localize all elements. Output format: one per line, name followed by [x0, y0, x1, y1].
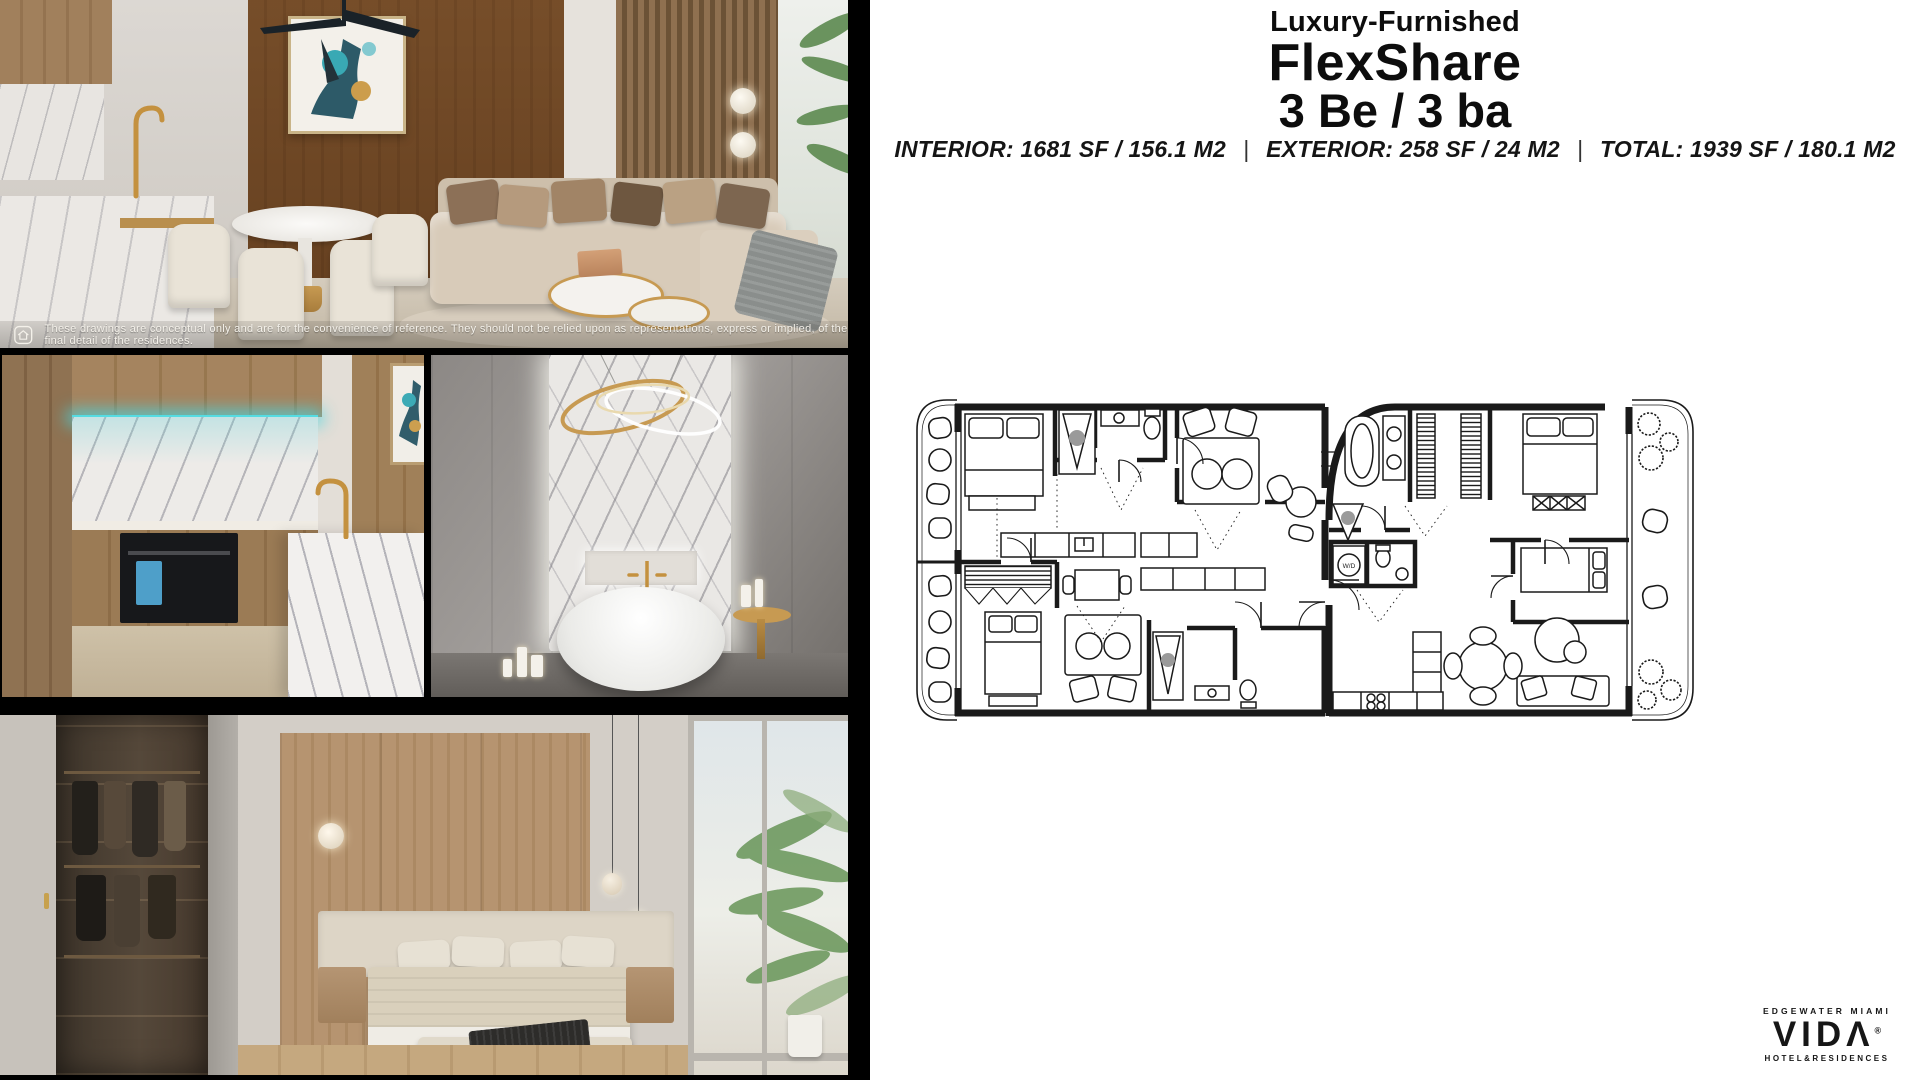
nightstand	[626, 967, 674, 1023]
upper-cabinets	[0, 0, 112, 84]
candle	[755, 579, 763, 607]
hanging-garment	[114, 875, 140, 947]
brochure-page: These drawings are conceptual only and a…	[0, 0, 1920, 1080]
powder-room	[1376, 545, 1408, 580]
dining-chair	[168, 224, 230, 308]
title-block: Luxury-Furnished FlexShare 3 Be / 3 ba	[870, 6, 1920, 138]
photo-bedroom-closet	[0, 715, 848, 1075]
dining-round-table	[1444, 627, 1522, 705]
brand-text: VIDΛ	[1773, 1015, 1875, 1054]
bed-bath-count: 3 Be / 3 ba	[870, 83, 1920, 138]
wall-sconce	[318, 823, 344, 849]
registered-mark: ®	[1875, 1025, 1882, 1035]
entry-table-chair	[1264, 472, 1316, 542]
hanging-garment	[132, 781, 158, 857]
separator: |	[1243, 136, 1249, 162]
balcony-glass-doors	[688, 715, 848, 1075]
marble-backsplash	[0, 84, 104, 180]
door-handle	[44, 893, 49, 909]
marble-waterfall-island	[288, 533, 424, 697]
gold-faucet	[302, 473, 362, 539]
wd-label: W/D	[1343, 563, 1356, 570]
candle	[531, 655, 543, 677]
total-area: TOTAL: 1939 SF / 180.1 M2	[1600, 136, 1896, 162]
pendant-cord	[612, 715, 613, 875]
mobile-decor	[250, 0, 450, 48]
gold-faucet	[128, 96, 168, 200]
photo-collage: These drawings are conceptual only and a…	[0, 0, 870, 1080]
ring-chandelier	[531, 355, 751, 465]
photo-bathroom	[431, 355, 848, 697]
wall-sconce	[730, 88, 756, 114]
area-specs: INTERIOR: 1681 SF / 156.1 M2|EXTERIOR: 2…	[870, 136, 1920, 163]
wood-floor	[238, 1045, 688, 1075]
hanging-garment	[148, 875, 176, 939]
artwork-edge	[390, 363, 424, 465]
pendant-light	[602, 873, 622, 895]
hanging-garment	[104, 781, 126, 849]
closet-shelf	[64, 955, 200, 958]
photo-living-room: These drawings are conceptual only and a…	[0, 0, 848, 348]
walk-in-closet-racks	[1417, 414, 1481, 498]
info-panel: Luxury-Furnished FlexShare 3 Be / 3 ba I…	[870, 0, 1920, 1080]
exterior-area: EXTERIOR: 258 SF / 24 M2	[1266, 136, 1560, 162]
bed-1	[965, 414, 1043, 510]
bathroom-2	[1153, 632, 1256, 708]
dining-table	[232, 206, 382, 242]
closet-shelf	[64, 771, 200, 774]
countertop	[72, 521, 318, 530]
window-frame	[688, 1053, 848, 1061]
wood-side-panel	[2, 355, 72, 697]
window-frame	[688, 715, 694, 1075]
kitchen-right-unit	[1333, 632, 1443, 710]
candle	[517, 647, 527, 677]
dining-chair	[372, 214, 428, 286]
hanging-garment	[72, 781, 98, 855]
palm-plant	[778, 0, 848, 200]
white-planter	[788, 1015, 822, 1057]
floor-plan: W/D	[905, 390, 1705, 730]
den-1	[1182, 406, 1259, 504]
vida-logo: EDGEWATER MIAMI VIDΛ® HOTEL&RESIDENCES	[1757, 1006, 1897, 1063]
logo-tagline: HOTEL&RESIDENCES	[1757, 1054, 1897, 1063]
logo-brand: VIDΛ®	[1757, 1017, 1897, 1052]
photo-kitchen	[2, 355, 424, 697]
walk-in-closet	[56, 715, 208, 1075]
interior-area: INTERIOR: 1681 SF / 156.1 M2	[894, 136, 1226, 162]
freestanding-tub	[557, 587, 725, 691]
balcony-right	[1632, 400, 1693, 720]
living-area	[1517, 618, 1609, 706]
separator: |	[1577, 136, 1583, 162]
palm-view	[688, 715, 848, 1075]
house-icon	[14, 324, 33, 346]
master-bath	[1345, 416, 1405, 486]
candle	[741, 585, 751, 607]
bed-3	[1521, 548, 1607, 592]
bathroom-1	[1101, 409, 1160, 439]
marble-backsplash	[72, 417, 318, 521]
blue-towel	[136, 561, 162, 605]
closet-hatch-2	[965, 566, 1051, 604]
bed-2	[985, 612, 1041, 706]
closet-shelf	[64, 865, 200, 868]
disclaimer-bar: These drawings are conceptual only and a…	[0, 321, 848, 348]
disclaimer-text: These drawings are conceptual only and a…	[45, 323, 848, 347]
side-table-leg	[757, 619, 765, 659]
nightstand	[318, 967, 366, 1023]
shower-1	[1059, 410, 1095, 474]
upper-cabinets	[72, 355, 322, 417]
shower-3	[1333, 504, 1363, 540]
master-bed	[1523, 414, 1597, 510]
den-2	[1065, 615, 1141, 703]
dining-table-2	[1063, 570, 1131, 600]
oven-handle	[128, 551, 230, 555]
window-frame	[688, 715, 848, 721]
candle	[503, 659, 512, 677]
gray-divider-wall	[208, 715, 238, 1075]
window-frame	[762, 715, 767, 1075]
hanging-garment	[164, 781, 186, 851]
hanging-garment	[76, 875, 106, 941]
pendant-cord	[638, 715, 639, 913]
balcony-left	[917, 400, 957, 720]
laptop	[577, 248, 623, 277]
wall-sconce	[730, 132, 756, 158]
